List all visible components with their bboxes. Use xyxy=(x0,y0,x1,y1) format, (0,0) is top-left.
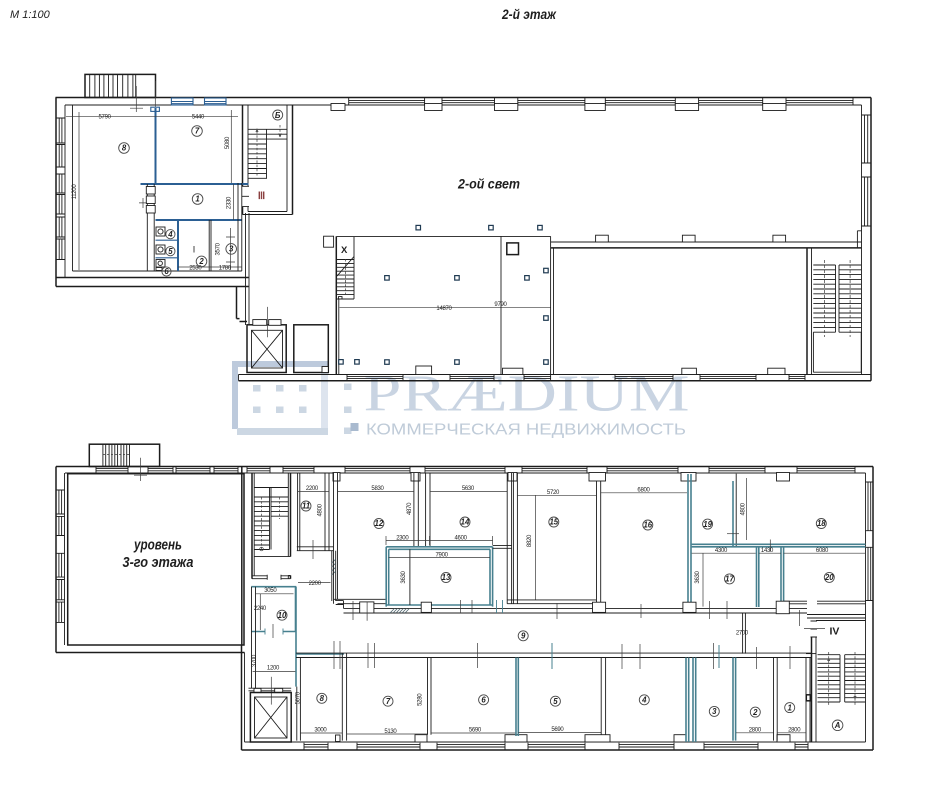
svg-text:5: 5 xyxy=(553,697,558,706)
svg-text:5630: 5630 xyxy=(462,486,475,492)
svg-text:3000: 3000 xyxy=(314,728,327,734)
svg-text:11200: 11200 xyxy=(72,184,78,200)
svg-text:2: 2 xyxy=(752,708,758,717)
svg-text:8: 8 xyxy=(122,144,127,153)
svg-text:2200: 2200 xyxy=(309,581,322,587)
svg-text:5080: 5080 xyxy=(225,136,231,149)
svg-text:8: 8 xyxy=(320,694,325,703)
svg-text:2800: 2800 xyxy=(788,727,801,733)
svg-text:14870: 14870 xyxy=(436,306,452,312)
svg-text:4800: 4800 xyxy=(318,503,324,516)
svg-text:3-го этажа: 3-го этажа xyxy=(123,554,194,571)
svg-text:5440: 5440 xyxy=(192,114,205,120)
svg-text:20: 20 xyxy=(824,573,834,582)
svg-text:5790: 5790 xyxy=(99,114,112,120)
svg-text:5130: 5130 xyxy=(384,729,397,735)
svg-text:КОММЕРЧЕСКАЯ НЕДВИЖИМОСТЬ: КОММЕРЧЕСКАЯ НЕДВИЖИМОСТЬ xyxy=(366,422,686,439)
svg-text:8820: 8820 xyxy=(527,534,533,547)
svg-text:X: X xyxy=(341,245,348,256)
svg-text:М 1:100: М 1:100 xyxy=(10,9,51,21)
svg-text:3050: 3050 xyxy=(264,588,277,594)
svg-text:6: 6 xyxy=(481,696,486,705)
svg-text:7900: 7900 xyxy=(436,552,449,558)
svg-text:6800: 6800 xyxy=(637,487,650,493)
svg-text:2200: 2200 xyxy=(306,486,319,492)
svg-text:7: 7 xyxy=(386,697,391,706)
svg-text:А: А xyxy=(834,721,841,730)
svg-text:13: 13 xyxy=(442,573,451,582)
svg-text:4300: 4300 xyxy=(715,548,728,554)
svg-text:4870: 4870 xyxy=(407,502,413,515)
svg-text:12: 12 xyxy=(375,519,384,528)
svg-text:3: 3 xyxy=(712,707,717,716)
svg-text:2-ой свет: 2-ой свет xyxy=(457,176,520,192)
svg-text:5280: 5280 xyxy=(418,693,424,706)
svg-text:2: 2 xyxy=(198,257,204,266)
svg-text:4600: 4600 xyxy=(455,535,468,541)
svg-text:1430: 1430 xyxy=(761,548,774,554)
svg-text:2800: 2800 xyxy=(749,727,762,733)
svg-text:5690: 5690 xyxy=(551,727,564,733)
svg-text:2330: 2330 xyxy=(227,196,233,209)
svg-text:4800: 4800 xyxy=(741,502,747,515)
svg-text:1: 1 xyxy=(788,703,792,712)
svg-text:2300: 2300 xyxy=(396,535,409,541)
svg-text:3630: 3630 xyxy=(401,570,407,583)
svg-text:10: 10 xyxy=(278,611,287,620)
svg-text:3: 3 xyxy=(229,245,234,254)
svg-text:Б: Б xyxy=(275,111,281,120)
svg-text:3570: 3570 xyxy=(216,242,222,255)
svg-text:4: 4 xyxy=(641,696,647,705)
svg-text:3700: 3700 xyxy=(252,654,258,667)
svg-text:9: 9 xyxy=(521,632,526,641)
svg-text:5720: 5720 xyxy=(547,490,560,496)
svg-text:16: 16 xyxy=(643,521,652,530)
svg-text:1200: 1200 xyxy=(267,666,280,672)
svg-text:11: 11 xyxy=(302,502,310,511)
svg-text:19: 19 xyxy=(703,520,712,529)
svg-text:1780: 1780 xyxy=(219,266,232,272)
svg-text:уровень: уровень xyxy=(133,537,182,554)
svg-text:17: 17 xyxy=(725,575,734,584)
svg-text:6: 6 xyxy=(164,267,169,276)
svg-text:5830: 5830 xyxy=(371,486,384,492)
svg-text:18: 18 xyxy=(817,519,826,528)
svg-text:15: 15 xyxy=(549,518,558,527)
svg-text:5070: 5070 xyxy=(296,691,302,704)
svg-text:7: 7 xyxy=(195,127,200,136)
svg-text:5: 5 xyxy=(168,247,173,256)
svg-text:1: 1 xyxy=(195,195,199,204)
svg-text:2700: 2700 xyxy=(736,631,749,637)
svg-text:6080: 6080 xyxy=(816,548,829,554)
svg-text:IV: IV xyxy=(830,626,840,638)
svg-text:I: I xyxy=(193,244,196,254)
svg-text:3630: 3630 xyxy=(695,570,701,583)
svg-text:2-й этаж: 2-й этаж xyxy=(501,6,556,22)
svg-text:14: 14 xyxy=(461,518,470,527)
svg-text:5690: 5690 xyxy=(469,728,482,734)
svg-text:4: 4 xyxy=(167,230,173,239)
